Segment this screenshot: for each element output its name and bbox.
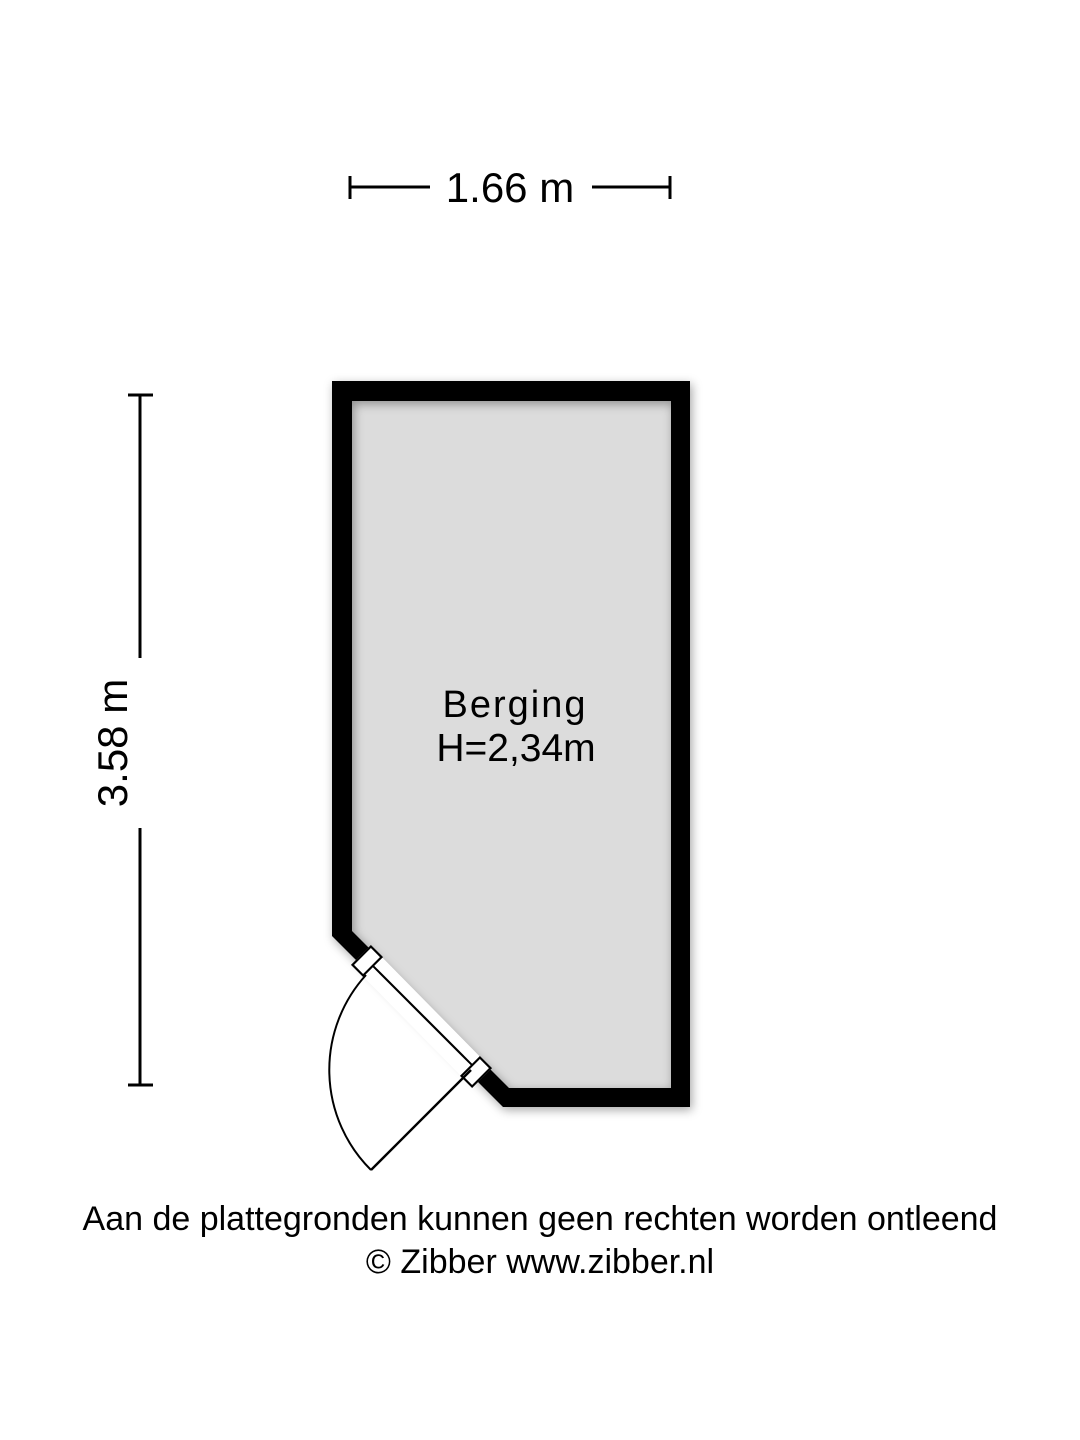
floorplan-canvas: 1.66 m 3.58 m: [0, 0, 1080, 1440]
footer-disclaimer: Aan de plattegronden kunnen geen rechten…: [83, 1200, 998, 1238]
room-ceiling-height-label: H=2,34m: [436, 727, 595, 770]
floorplan-page: 1.66 m 3.58 m: [0, 0, 1080, 1440]
door-swing-arc: [329, 975, 371, 1170]
dimension-width: 1.66 m: [350, 164, 670, 211]
room-name-label: Berging: [443, 684, 588, 726]
room-berging: Berging H=2,34m: [329, 381, 690, 1170]
dimension-depth-label: 3.58 m: [89, 679, 136, 807]
dimension-width-label: 1.66 m: [446, 164, 574, 211]
footer: Aan de plattegronden kunnen geen rechten…: [83, 1200, 998, 1281]
dimension-depth: 3.58 m: [89, 395, 153, 1085]
door-leaf: [371, 1070, 471, 1170]
footer-copyright: © Zibber www.zibber.nl: [366, 1243, 714, 1281]
